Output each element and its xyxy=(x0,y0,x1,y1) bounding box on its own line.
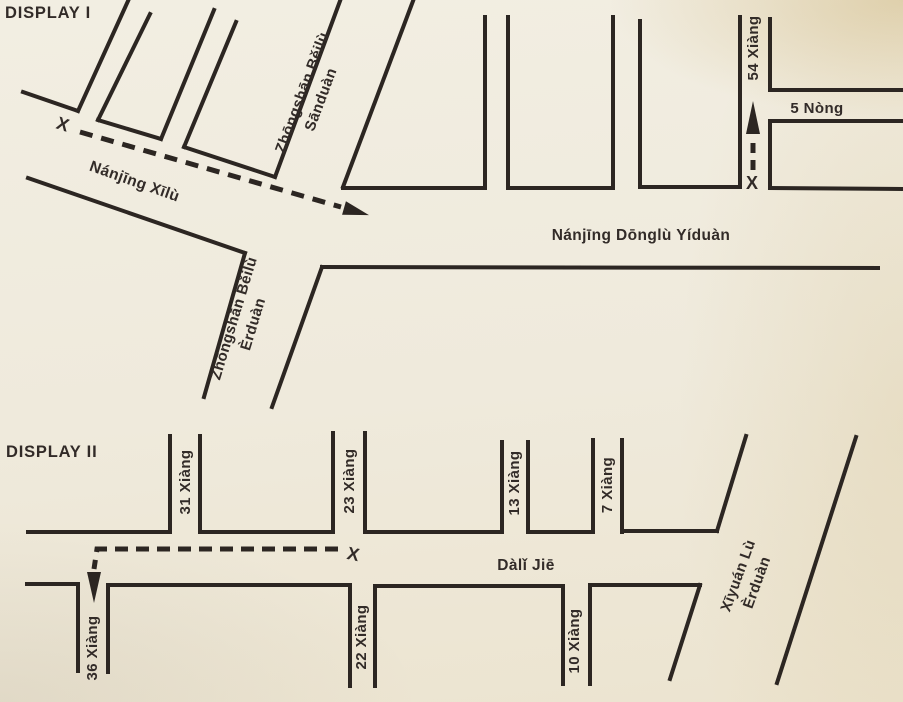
label-zhongshan-beilu-erduan: Zhōngshān Běilù Èrduàn xyxy=(207,255,280,388)
display1-side-street-2 xyxy=(161,10,236,147)
route-start-x-marker: X xyxy=(54,113,72,136)
route-start-x-marker: X xyxy=(746,173,758,193)
label-dali-jie: Dàlǐ Jiē xyxy=(497,557,554,574)
road-line xyxy=(670,585,700,679)
label-5-nong: 5 Nòng xyxy=(790,100,843,117)
label-54-xiang: 54 Xiàng xyxy=(745,16,762,81)
road-nanjing-donglu-upper-edge xyxy=(343,187,901,189)
road-line xyxy=(98,14,150,120)
route-arrowhead xyxy=(87,572,101,603)
scanned-map-page: X X DISPLAY I Nánjīng Xīlù Zhōngshān Běi… xyxy=(0,0,903,702)
label-31-xiang: 31 Xiàng xyxy=(177,450,194,515)
route-arrowhead xyxy=(342,201,371,222)
label-7-xiang: 7 Xiàng xyxy=(599,457,616,513)
route-start-x-marker: X xyxy=(345,543,361,565)
label-13-xiang: 13 Xiàng xyxy=(506,451,523,516)
display2-route: X xyxy=(87,543,361,603)
road-line xyxy=(161,10,214,139)
label-23-xiang: 23 Xiàng xyxy=(341,449,358,514)
road-line xyxy=(343,1,413,187)
road-line xyxy=(777,437,856,683)
road-line xyxy=(770,188,901,189)
display1-vertical-street-1 xyxy=(485,17,508,188)
road-line xyxy=(23,92,78,111)
route-dashed-path xyxy=(94,549,338,569)
road-line xyxy=(184,22,236,147)
display1-vertical-street-2 xyxy=(613,17,640,188)
label-nanjing-donglu-yiduan: Nánjīng Dōnglù Yíduàn xyxy=(552,227,731,244)
road-line xyxy=(272,267,322,407)
display1-title: DISPLAY I xyxy=(5,4,91,22)
display1-roads xyxy=(23,1,903,407)
street-map-canvas: X X DISPLAY I Nánjīng Xīlù Zhōngshān Běi… xyxy=(0,0,903,702)
road-dali-jie-upper-edge xyxy=(28,531,717,532)
road-nanjing-donglu-lower-edge xyxy=(322,267,878,268)
label-nanjing-xilu: Nánjīng Xīlù xyxy=(87,158,182,206)
road-dali-jie-lower-edge xyxy=(27,584,700,586)
label-10-xiang: 10 Xiàng xyxy=(566,609,583,674)
display2-roads xyxy=(27,433,856,686)
display1-54xiang-route: X xyxy=(746,101,760,193)
display2-title: DISPLAY II xyxy=(6,443,97,461)
road-line xyxy=(717,436,746,531)
road-line xyxy=(98,120,161,139)
label-xiyuan-lu-erduan: Xīyuán Lù Èrduàn xyxy=(717,537,778,620)
label-22-xiang: 22 Xiàng xyxy=(353,605,370,670)
label-zhongshan-beilu-sanduan: Zhōngshān Běilù Sānduàn xyxy=(272,30,351,163)
route-arrowhead xyxy=(746,101,760,134)
road-nanjing-xilu-upper-edge xyxy=(23,92,275,177)
label-36-xiang: 36 Xiàng xyxy=(84,616,101,681)
